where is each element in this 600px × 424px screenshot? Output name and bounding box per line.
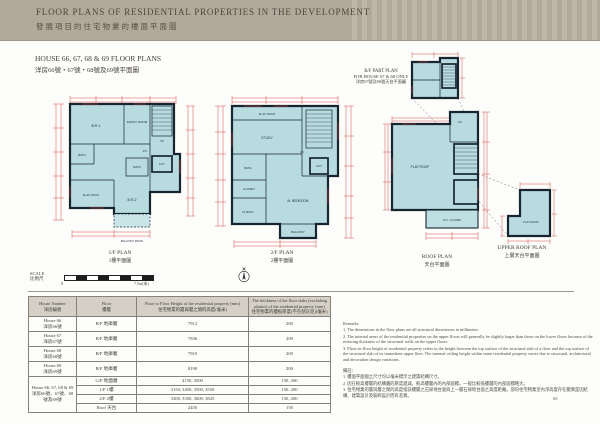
cell-thickness: 200	[249, 332, 331, 347]
spec-table: House Number 洋房編號 Floor 樓層 Floor to Floo…	[28, 296, 331, 413]
cell-floor: B/F 地庫層	[77, 317, 137, 332]
remark-en-2: 2. The internal areas of the residential…	[343, 334, 595, 346]
header-title-zh: 發展項目的住宅物業的樓面平面圖	[36, 21, 179, 32]
remark-en-1: 1. The dimensions in the floor plans are…	[343, 327, 595, 333]
caption-upper-roof-zh: 上層天台平面圖	[472, 252, 572, 259]
room-label-lift-2f: LIFT	[316, 164, 322, 168]
caption-upper-roof-plan: UPPER ROOF PLAN 上層天台平面圖	[472, 245, 572, 259]
section-title-en: HOUSE 66, 67, 68 & 69 FLOOR PLANS	[35, 54, 161, 63]
cell-thickness: 200	[249, 347, 331, 362]
scale-max: 7.5m(米)	[134, 281, 149, 287]
col-header-floor: Floor 樓層	[77, 297, 137, 317]
col-header-thickness-zh: 住宅物業的樓板厚度(不包括灰泥)(毫米)	[251, 309, 328, 315]
cell-floor: 2/F 2樓	[77, 394, 137, 403]
room-label-study: STUDY	[261, 136, 273, 140]
room-label-bath2: BATH	[78, 153, 85, 157]
room-label-flat-roof-roofplan: FLAT ROOF	[411, 165, 430, 169]
caption-1f-zh: 1樓平面圖	[80, 257, 160, 264]
floor-plan-2f: FLAT ROOF STUDY DN LIFT BATH CLOSET M. B…	[210, 92, 360, 250]
col-header-house: House Number 洋房編號	[29, 297, 77, 317]
cell-floor: B/F 地庫層	[77, 361, 137, 376]
room-label-ac: A/C	[458, 120, 463, 124]
cell-house-zh: 洋房69號	[31, 369, 74, 375]
cell-floor: B/F 地庫層	[77, 332, 137, 347]
cell-floor: Roof 天台	[77, 403, 137, 412]
room-label-dn: DN	[300, 150, 304, 154]
cell-height: 7836	[137, 332, 249, 347]
cell-floor: G/F 地面層	[77, 376, 137, 385]
cell-thickness: 200	[249, 361, 331, 376]
cell-house: House 69 洋房69號	[29, 361, 77, 376]
room-label-lift: LIFT	[159, 162, 165, 166]
upper-roof-plan: FLAT ROOF	[498, 178, 558, 248]
caption-2f-en: 2/F PLAN	[242, 250, 322, 256]
scale-label-zh: 比例尺	[30, 276, 44, 281]
cell-height: 8190	[137, 361, 249, 376]
cell-house-group: House 66, 67, 68 & 69 洋房66號、67號、68號及69號	[29, 376, 77, 412]
header-title-en: FLOOR PLANS OF RESIDENTIAL PROPERTIES IN…	[36, 7, 370, 17]
scale-label: SCALE 比例尺	[30, 271, 44, 282]
room-label-br2: B.R.2	[128, 198, 137, 202]
room-label-m-bedroom: M. BEDROOM	[288, 199, 309, 203]
col-header-thickness: The thickness of the floor slabs (exclud…	[249, 297, 331, 317]
north-arrow-icon	[236, 266, 252, 284]
caption-1f-en: 1/F PLAN	[80, 250, 160, 256]
caption-2f-plan: 2/F PLAN 2樓平面圖	[242, 250, 322, 264]
col-header-floor-zh: 樓層	[79, 307, 134, 313]
cell-house: House 66 洋房66號	[29, 317, 77, 332]
col-header-height: Floor to Floor Height of the residential…	[137, 297, 249, 317]
cell-height: 2450	[137, 403, 249, 412]
scale-zero: 0	[61, 281, 63, 286]
table-row: House 69 洋房69號 B/F 地庫層 8190 200	[29, 361, 331, 376]
caption-1f-plan: 1/F PLAN 1樓平面圖	[80, 250, 160, 264]
room-label-rc-cover: R.C. COVER	[443, 218, 461, 222]
cell-house-zh: 洋房68號	[31, 354, 74, 360]
table-row: House 67 洋房67號 B/F 地庫層 7836 200	[29, 332, 331, 347]
table-group-row: House 66, 67, 68 & 69 洋房66號、67號、68號及69號 …	[29, 376, 331, 385]
caption-roof-en: ROOF PLAN	[397, 254, 477, 260]
room-label-balcony-roof: BALCONY ROOF	[121, 239, 143, 243]
col-header-thickness-en: The thickness of the floor slabs (exclud…	[251, 298, 328, 309]
cell-floor: B/F 地庫層	[77, 347, 137, 362]
page-header: FLOOR PLANS OF RESIDENTIAL PROPERTIES IN…	[0, 0, 600, 41]
room-label-up: UP	[160, 139, 164, 143]
roof-plan: FLAT ROOF A/C R.C. COVER	[382, 98, 492, 246]
section-title-zh: 洋房66號・67號・68號及69號平面圖	[35, 64, 139, 74]
divider-line	[28, 291, 574, 292]
room-label-closet: CLOSET	[243, 187, 255, 191]
cell-house-zh: 洋房66號	[31, 324, 74, 330]
cell-thickness: 150, 200	[249, 385, 331, 394]
remarks-block-zh: 備註： 1. 樓面平面圖之尺寸均以毫米標示之建築結構尺寸。 2. 因在較高樓層的…	[343, 368, 595, 398]
table-header-row: House Number 洋房編號 Floor 樓層 Floor to Floo…	[29, 297, 331, 317]
remarks-block: Remarks: 1. The dimensions in the floor …	[343, 321, 595, 399]
cell-thickness: 150	[249, 403, 331, 412]
cell-height: 7910	[137, 347, 249, 362]
caption-upper-roof-en: UPPER ROOF PLAN	[472, 245, 572, 251]
room-label-flat-roof-2f: FLAT ROOF	[259, 112, 276, 116]
room-label-pd: P.D.	[143, 150, 148, 153]
table-row: House 66 洋房66號 B/F 地庫層 7912 200	[29, 317, 331, 332]
cell-house: House 67 洋房67號	[29, 332, 77, 347]
caption-roof-plan: ROOF PLAN 天台平面圖	[397, 254, 477, 268]
floor-plan-1f: B.R.1 FAMILY ROOM UP LIFT BATH BATH P.D.…	[50, 94, 200, 244]
room-label-m-bath: M. BATH	[242, 210, 253, 214]
remark-zh-1: 1. 樓面平面圖之尺寸均以毫米標示之建築結構尺寸。	[343, 374, 595, 380]
brochure-page: FLOOR PLANS OF RESIDENTIAL PROPERTIES IN…	[0, 0, 600, 424]
col-header-height-zh: 住宅物業的層與層之間的高度(毫米)	[139, 307, 246, 313]
table-row: House 68 洋房68號 B/F 地庫層 7910 200	[29, 347, 331, 362]
room-label-br1: B.R.1	[92, 124, 101, 128]
room-label-balcony: BALCONY	[291, 230, 305, 234]
caption-2f-zh: 2樓平面圖	[242, 257, 322, 264]
cell-height: 4150, 4500	[137, 376, 249, 385]
room-label-bath: BATH	[133, 165, 140, 169]
remark-zh-2: 2. 因在較高樓層的結構牆的厚度遞減，較高樓層內的內部面積，一般比較低樓層的內部…	[343, 381, 595, 387]
caption-rf-l3: 洋房67號及68號天台平面圖	[338, 79, 424, 85]
cell-floor: 1/F 1樓	[77, 385, 137, 394]
caption-rf-part-plan: R/F PART PLAN FOR HOUSE 67 & 68 ONLY 洋房6…	[338, 69, 424, 85]
cell-thickness: 150, 200	[249, 376, 331, 385]
room-label-bath-2f: BATH	[244, 166, 251, 170]
caption-roof-zh: 天台平面圖	[397, 261, 477, 268]
cell-height: 3150, 3450, 3500, 3550	[137, 385, 249, 394]
room-label-family-room: FAMILY ROOM	[127, 120, 148, 124]
col-header-height-en: Floor to Floor Height of the residential…	[139, 301, 246, 307]
remark-en-3: 3. Floor-to-floor height of residential …	[343, 346, 595, 363]
remarks-title-en: Remarks:	[343, 321, 595, 327]
cell-height: 7912	[137, 317, 249, 332]
room-label-flat-roof: FLAT ROOF	[83, 193, 100, 197]
remarks-title-zh: 備註：	[343, 368, 595, 374]
cell-thickness: 150, 200	[249, 394, 331, 403]
col-header-house-zh: 洋房編號	[31, 307, 74, 313]
page-number: 68	[553, 396, 558, 401]
room-label-flat-roof-upper: FLAT ROOF	[523, 220, 539, 224]
cell-height: 3300, 3350, 3600, 3825	[137, 394, 249, 403]
cell-house: House 68 洋房68號	[29, 347, 77, 362]
cell-house-group-zh: 洋房66號、67號、68號及69號	[31, 391, 74, 403]
cell-house-zh: 洋房67號	[31, 339, 74, 345]
cell-thickness: 200	[249, 317, 331, 332]
header-stripes-decoration	[352, 0, 600, 40]
